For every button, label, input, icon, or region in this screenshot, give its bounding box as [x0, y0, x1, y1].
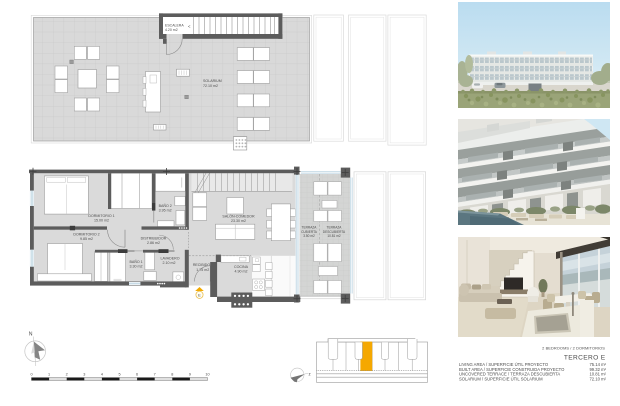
svg-text:ESCALERA: ESCALERA: [165, 24, 184, 28]
svg-text:2 BEDROOMS / 2 DORMITORIOS: 2 BEDROOMS / 2 DORMITORIOS: [542, 346, 605, 351]
svg-text:2.86 m2: 2.86 m2: [147, 241, 160, 245]
svg-text:2.10 m2: 2.10 m2: [163, 261, 176, 265]
svg-text:4: 4: [101, 373, 103, 377]
svg-text:3: 3: [83, 373, 85, 377]
svg-text:LAVADERO: LAVADERO: [161, 256, 180, 260]
svg-text:5: 5: [118, 373, 120, 377]
svg-text:72.10 m²: 72.10 m²: [589, 376, 606, 381]
svg-text:8: 8: [171, 373, 173, 377]
svg-text:BAÑO 2: BAÑO 2: [159, 203, 172, 208]
svg-text:10: 10: [205, 373, 209, 377]
svg-text:6: 6: [136, 373, 138, 377]
svg-text:z: z: [309, 372, 311, 377]
svg-text:3.30 m2: 3.30 m2: [130, 265, 143, 269]
svg-text:BAÑO 1: BAÑO 1: [130, 259, 143, 264]
svg-text:9: 9: [189, 373, 191, 377]
svg-text:E: E: [198, 293, 201, 298]
svg-text:2: 2: [66, 373, 68, 377]
svg-text:DISTRIBUIDOR: DISTRIBUIDOR: [141, 237, 167, 241]
svg-text:10.81 m2: 10.81 m2: [327, 234, 341, 238]
svg-text:SOLARIUM: SOLARIUM: [203, 79, 222, 83]
svg-text:4.90 m2: 4.90 m2: [235, 270, 248, 274]
svg-text:TERCERO E: TERCERO E: [564, 355, 606, 362]
svg-text:1: 1: [48, 373, 50, 377]
svg-text:3.95 m2: 3.95 m2: [159, 208, 172, 212]
svg-text:0: 0: [30, 373, 32, 377]
svg-text:SOLARIUM / SUPERFICIE ÚTIL SOL: SOLARIUM / SUPERFICIE ÚTIL SOLARIUM: [459, 376, 543, 381]
svg-text:7: 7: [154, 373, 156, 377]
svg-text:COCINA: COCINA: [234, 265, 249, 269]
svg-text:N: N: [29, 331, 33, 337]
svg-text:3.50 m2: 3.50 m2: [303, 234, 315, 238]
svg-text:SALÓN-COMEDOR: SALÓN-COMEDOR: [222, 214, 255, 219]
svg-text:72.10 m2: 72.10 m2: [203, 84, 218, 88]
svg-text:4.20 m2: 4.20 m2: [165, 28, 178, 32]
svg-text:15.00 m2: 15.00 m2: [94, 218, 109, 222]
svg-text:23.30 m2: 23.30 m2: [231, 219, 246, 223]
svg-text:DORMITORIO 1: DORMITORIO 1: [88, 214, 114, 218]
svg-text:9.85 m2: 9.85 m2: [80, 237, 93, 241]
svg-text:DORMITORIO 2: DORMITORIO 2: [73, 233, 99, 237]
